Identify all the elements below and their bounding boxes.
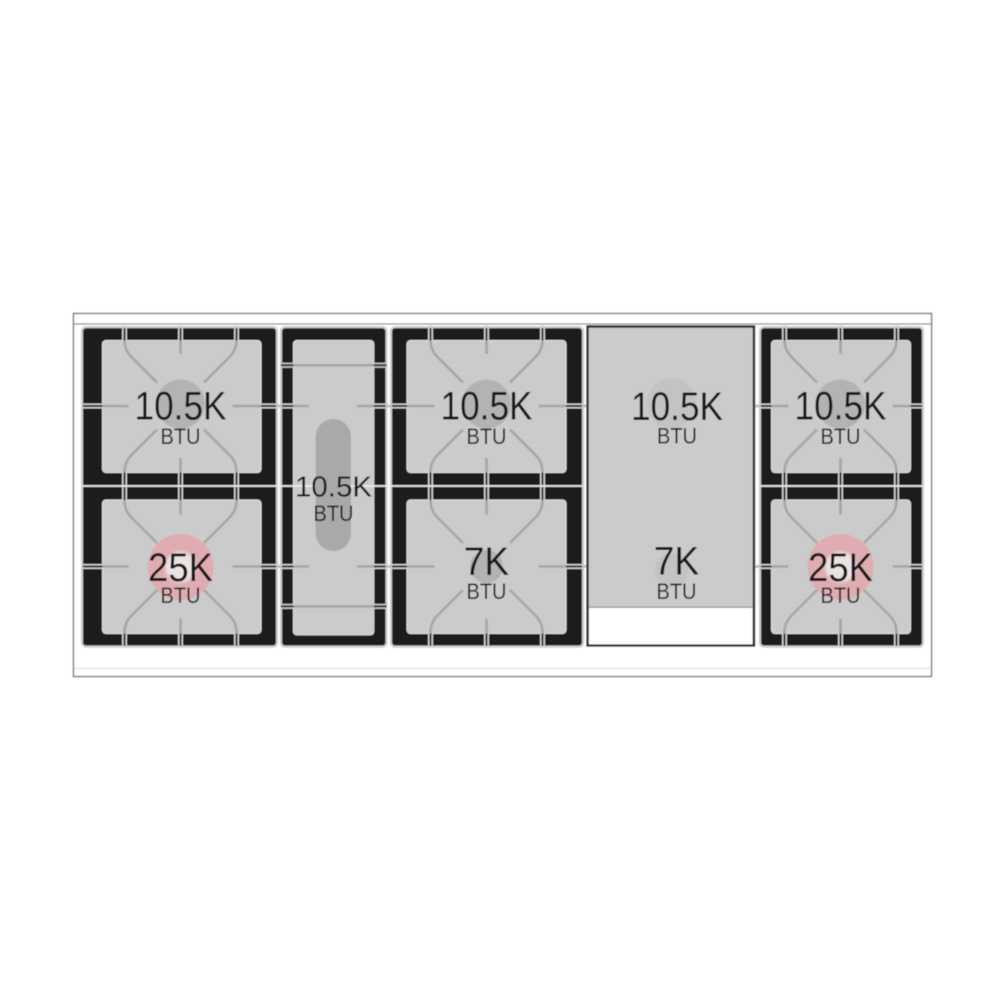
svg-text:BTU: BTU	[821, 583, 861, 608]
svg-text:10.5K: 10.5K	[295, 472, 372, 504]
svg-text:BTU: BTU	[657, 579, 697, 604]
svg-text:10.5K: 10.5K	[441, 384, 533, 428]
svg-text:BTU: BTU	[161, 583, 201, 608]
svg-text:BTU: BTU	[657, 423, 697, 448]
svg-text:BTU: BTU	[314, 501, 354, 526]
svg-text:7K: 7K	[464, 540, 510, 584]
svg-text:BTU: BTU	[161, 424, 201, 449]
svg-text:10.5K: 10.5K	[795, 384, 887, 428]
svg-text:BTU: BTU	[467, 579, 507, 604]
svg-text:7K: 7K	[654, 539, 700, 583]
svg-text:10.5K: 10.5K	[631, 385, 723, 429]
svg-text:BTU: BTU	[467, 424, 507, 449]
svg-text:BTU: BTU	[821, 424, 861, 449]
svg-text:10.5K: 10.5K	[135, 384, 227, 428]
